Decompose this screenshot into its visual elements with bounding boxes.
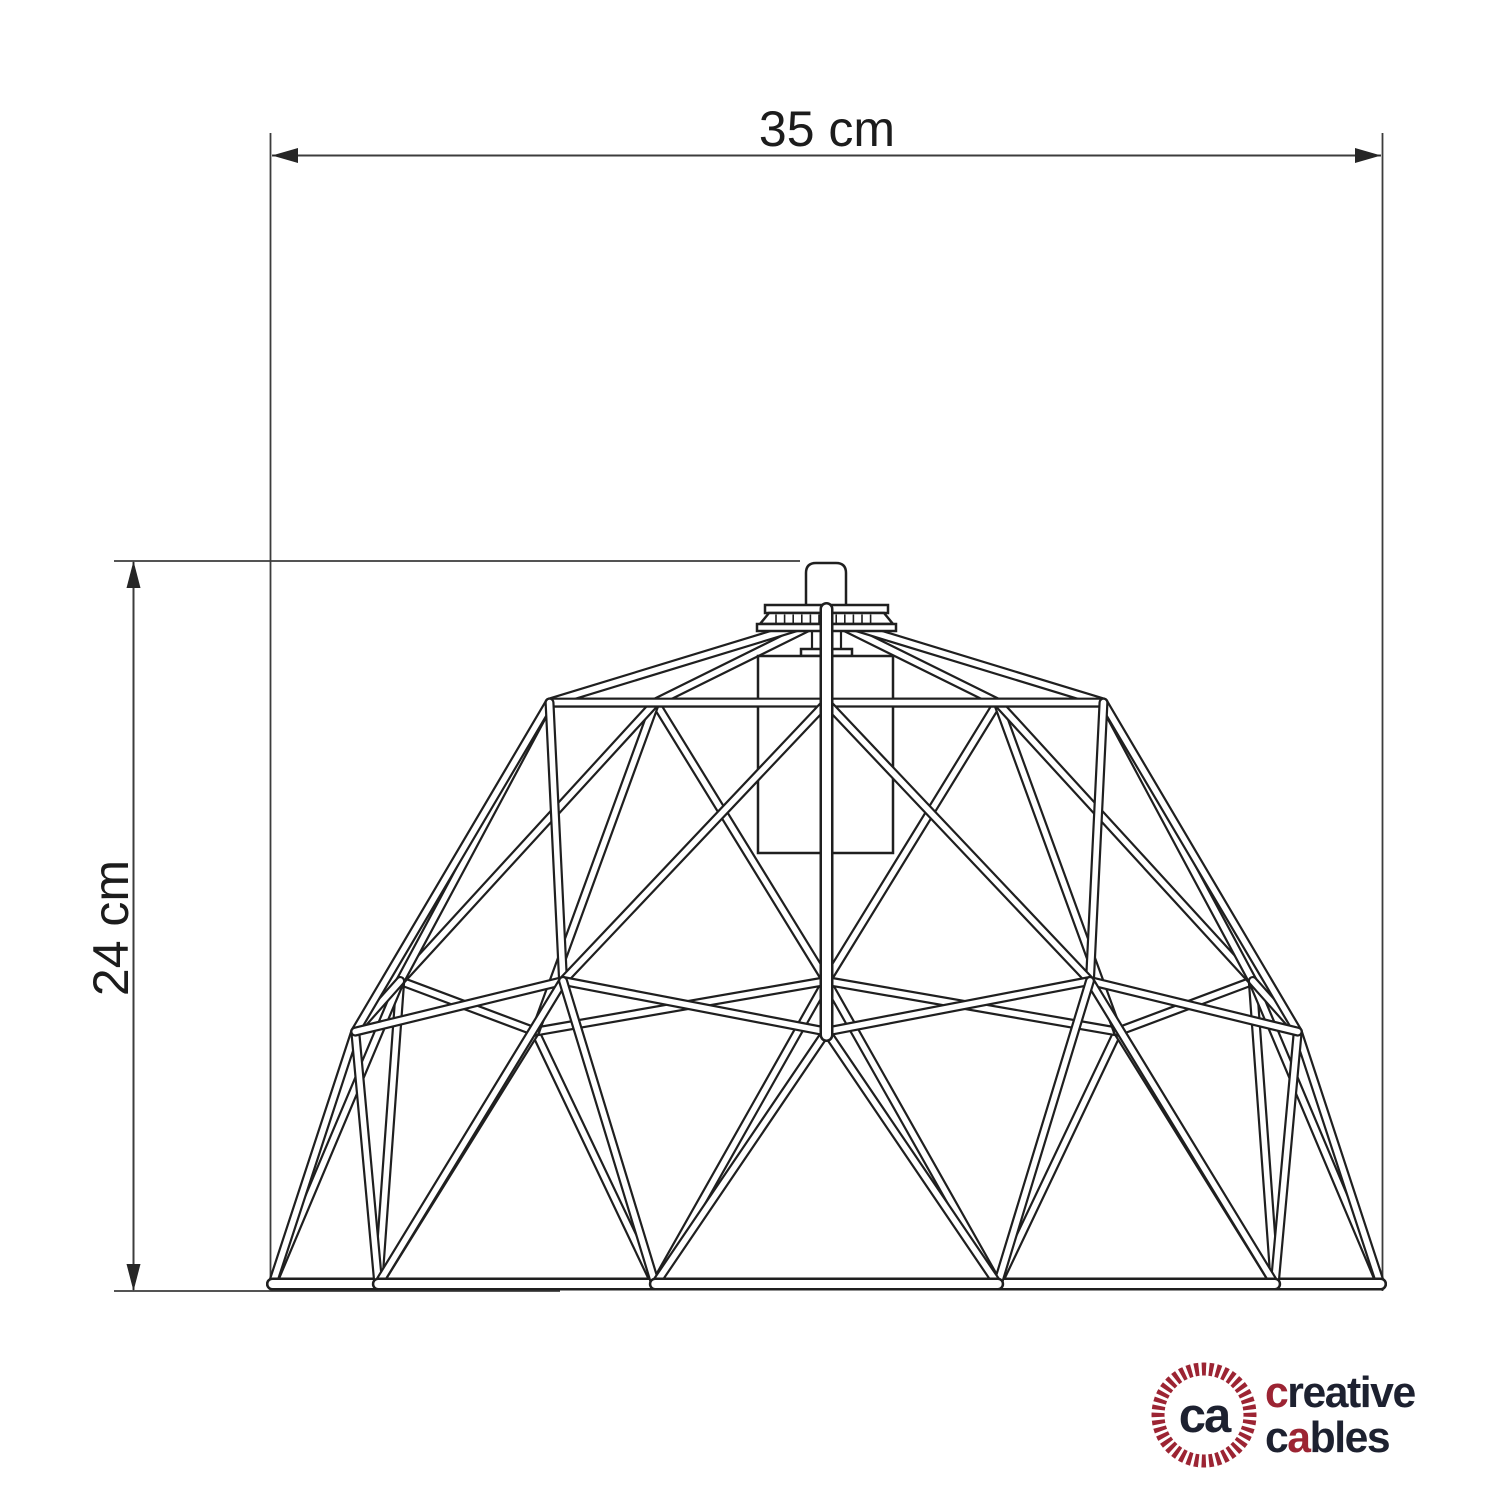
logo-letter: a: [1287, 1413, 1309, 1462]
dimension-arrow-left: [272, 148, 298, 163]
logo-word-cables: cables: [1265, 1415, 1415, 1460]
dome-cage-lampshade-drawing: [273, 563, 1381, 1284]
dome-strut-core: [1103, 703, 1297, 1032]
dome-strut-core: [1090, 981, 1275, 1284]
width-dimension-label: 35 cm: [759, 101, 895, 157]
dimension-arrow-down: [127, 1264, 141, 1291]
creative-cables-logo: ca creative cables: [1150, 1361, 1419, 1469]
dome-strut-core: [563, 981, 655, 1284]
dimension-arrow-up: [127, 561, 141, 588]
logo-wordmark: creative cables: [1265, 1370, 1415, 1460]
logo-monogram: ca: [1179, 1389, 1232, 1443]
logo-word-creative: creative: [1265, 1370, 1415, 1415]
logo-rope-circle: ca: [1150, 1361, 1258, 1469]
logo-letter: c: [1265, 1368, 1287, 1417]
dome-strut-core: [273, 1032, 356, 1284]
product-dimension-diagram: 35 cm 24 cm ca creative cables: [0, 0, 1500, 1500]
dome-strut-core: [998, 981, 1090, 1284]
dome-strut-core: [827, 1032, 998, 1284]
technical-drawing-svg: 35 cm 24 cm: [0, 0, 1500, 1500]
dome-strut-core: [378, 981, 563, 1284]
dome-strut-core: [655, 1032, 826, 1284]
height-dimension-label: 24 cm: [83, 860, 139, 996]
dome-strut-core: [355, 703, 549, 1032]
dome-strut-core: [998, 1032, 1118, 1284]
logo-letter: reative: [1287, 1368, 1414, 1417]
dome-strut-core: [1298, 1032, 1381, 1284]
dome-strut-core: [535, 1032, 655, 1284]
logo-letter: bles: [1310, 1413, 1390, 1462]
logo-letter: c: [1265, 1413, 1287, 1462]
dimension-arrow-right: [1355, 148, 1381, 163]
